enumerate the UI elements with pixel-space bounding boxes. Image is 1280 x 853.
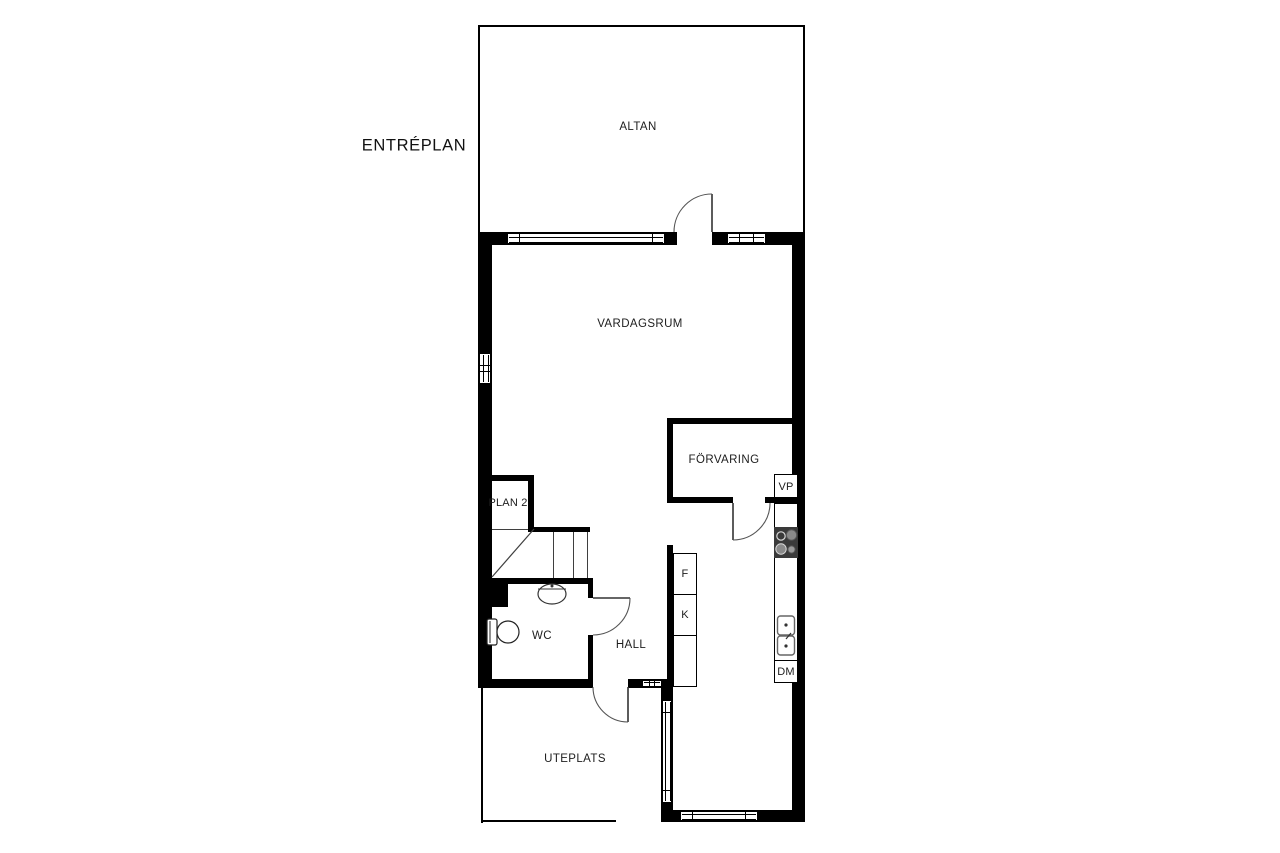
- floor-plan: ENTRÉPLAN ALTAN VARDAGSRUM FÖRVARING VP …: [0, 0, 1280, 853]
- room-label-altan: ALTAN: [619, 121, 656, 133]
- room-label-uteplats: UTEPLATS: [544, 753, 606, 765]
- toilet-bowl-icon: [497, 621, 519, 643]
- forvaring-door-arc: [733, 503, 770, 540]
- label-freezer: F: [682, 568, 689, 580]
- label-heat-pump: VP: [778, 481, 793, 493]
- sink-drain-bottom: [784, 644, 787, 647]
- toilet-tank-icon: [487, 619, 497, 645]
- altan-door-arc: [674, 194, 712, 232]
- room-label-forvaring: FÖRVARING: [689, 454, 760, 466]
- stove-burner-3: [776, 544, 786, 554]
- label-dishwasher: DM: [777, 666, 795, 678]
- room-label-vardagsrum: VARDAGSRUM: [597, 318, 683, 330]
- uteplats-door-arc: [593, 687, 628, 722]
- room-label-wc: WC: [532, 630, 552, 642]
- stove-burner-2: [786, 530, 796, 540]
- stove-burner-4: [788, 546, 795, 553]
- sink-drain-top: [784, 623, 787, 626]
- stairs-diagonal: [492, 529, 534, 577]
- plan-title: ENTRÉPLAN: [362, 137, 466, 156]
- wc-basin-tap: [551, 585, 554, 588]
- label-fridge: K: [681, 609, 689, 621]
- room-label-hall: HALL: [616, 639, 646, 651]
- room-label-plan2: PLAN 2: [488, 497, 527, 509]
- wc-door-arc: [593, 598, 630, 635]
